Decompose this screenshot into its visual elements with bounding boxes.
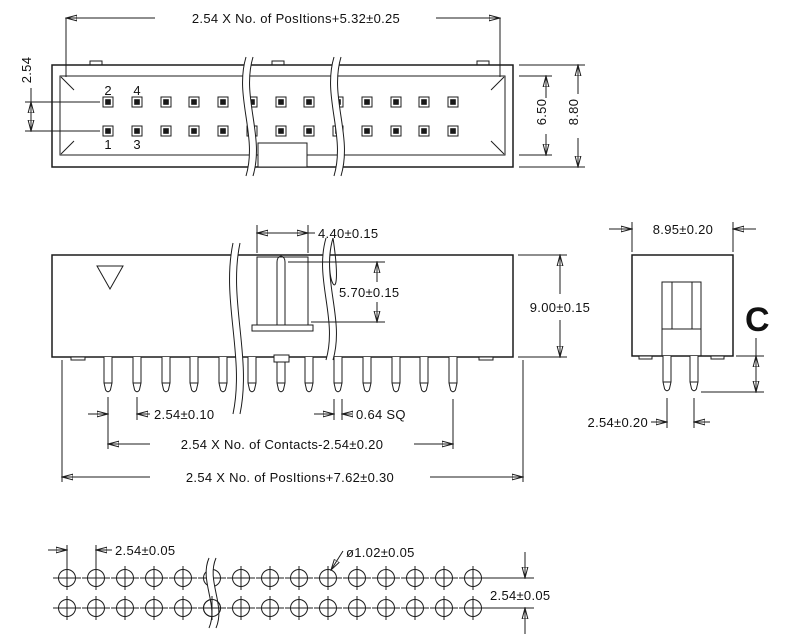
top-view: 2 4 1 3 2.54 X No. of PosItions+5.32±0.2… bbox=[19, 11, 585, 176]
dim-body-depth-label: 8.95±0.20 bbox=[653, 222, 713, 237]
footprint-break-lines bbox=[198, 558, 226, 628]
dim-hole-pitch-label: 2.54±0.05 bbox=[115, 543, 175, 558]
footprint-view: 2.54±0.05 ø1.02±0.05 2.54±0.05 bbox=[48, 543, 550, 634]
key-slot bbox=[258, 143, 307, 167]
dim-pin-square-label: 0.64 SQ bbox=[356, 407, 406, 422]
dim-pin-length-label: C bbox=[745, 301, 770, 339]
dim-hole-pitch: 2.54±0.05 bbox=[48, 543, 175, 566]
dim-pin-square: 0.64 SQ bbox=[314, 399, 406, 422]
pin-number-3: 3 bbox=[133, 137, 140, 152]
dim-body-depth: 8.95±0.20 bbox=[609, 222, 756, 252]
dim-positions-span-label: 2.54 X No. of PosItions+7.62±0.30 bbox=[186, 470, 394, 485]
dim-top-row-pitch-label: 2.54 bbox=[19, 57, 34, 84]
dim-side-row-pitch: 2.54±0.20 bbox=[588, 398, 710, 430]
dim-front-body-height: 9.00±0.15 bbox=[518, 255, 590, 357]
dim-hole-diameter-label: ø1.02±0.05 bbox=[346, 545, 415, 560]
dim-pin-pitch: 2.54±0.10 bbox=[88, 397, 214, 422]
dim-pin-pitch-label: 2.54±0.10 bbox=[154, 407, 214, 422]
dim-key-slot-width: 4.40±0.15 bbox=[257, 225, 378, 253]
dim-hole-diameter: ø1.02±0.05 bbox=[331, 545, 415, 570]
pin-number-1: 1 bbox=[104, 137, 111, 152]
dim-footprint-row-pitch: 2.54±0.05 bbox=[484, 552, 550, 634]
pin-number-2: 2 bbox=[104, 83, 111, 98]
dim-contacts-span-label: 2.54 X No. of Contacts-2.54±0.20 bbox=[181, 437, 383, 452]
side-view-pins bbox=[663, 356, 698, 391]
dim-top-heights: 6.50 8.80 bbox=[519, 65, 585, 167]
dim-front-body-height-label: 9.00±0.15 bbox=[530, 300, 590, 315]
dim-key-slot-width-label: 4.40±0.15 bbox=[318, 226, 378, 241]
technical-drawing-page: 2 4 1 3 2.54 X No. of PosItions+5.32±0.2… bbox=[0, 0, 799, 643]
connector-drawing-svg: 2 4 1 3 2.54 X No. of PosItions+5.32±0.2… bbox=[0, 0, 799, 643]
pin-number-4: 4 bbox=[133, 83, 140, 98]
side-view-body bbox=[632, 255, 733, 359]
front-view: 4.40±0.15 5.70±0.15 9.00±0.15 2.54±0.10 bbox=[52, 225, 590, 485]
dim-footprint-row-pitch-label: 2.54±0.05 bbox=[490, 588, 550, 603]
dim-key-slot-depth-label: 5.70±0.15 bbox=[339, 285, 399, 300]
side-view: 8.95±0.20 C 2.54±0.20 bbox=[588, 222, 770, 430]
dim-top-width-label: 2.54 X No. of PosItions+5.32±0.25 bbox=[192, 11, 400, 26]
footprint-holes bbox=[53, 566, 487, 620]
dim-cavity-height-label: 6.50 bbox=[534, 99, 549, 126]
dim-side-row-pitch-label: 2.54±0.20 bbox=[588, 415, 648, 430]
dim-body-height-label: 8.80 bbox=[566, 99, 581, 126]
